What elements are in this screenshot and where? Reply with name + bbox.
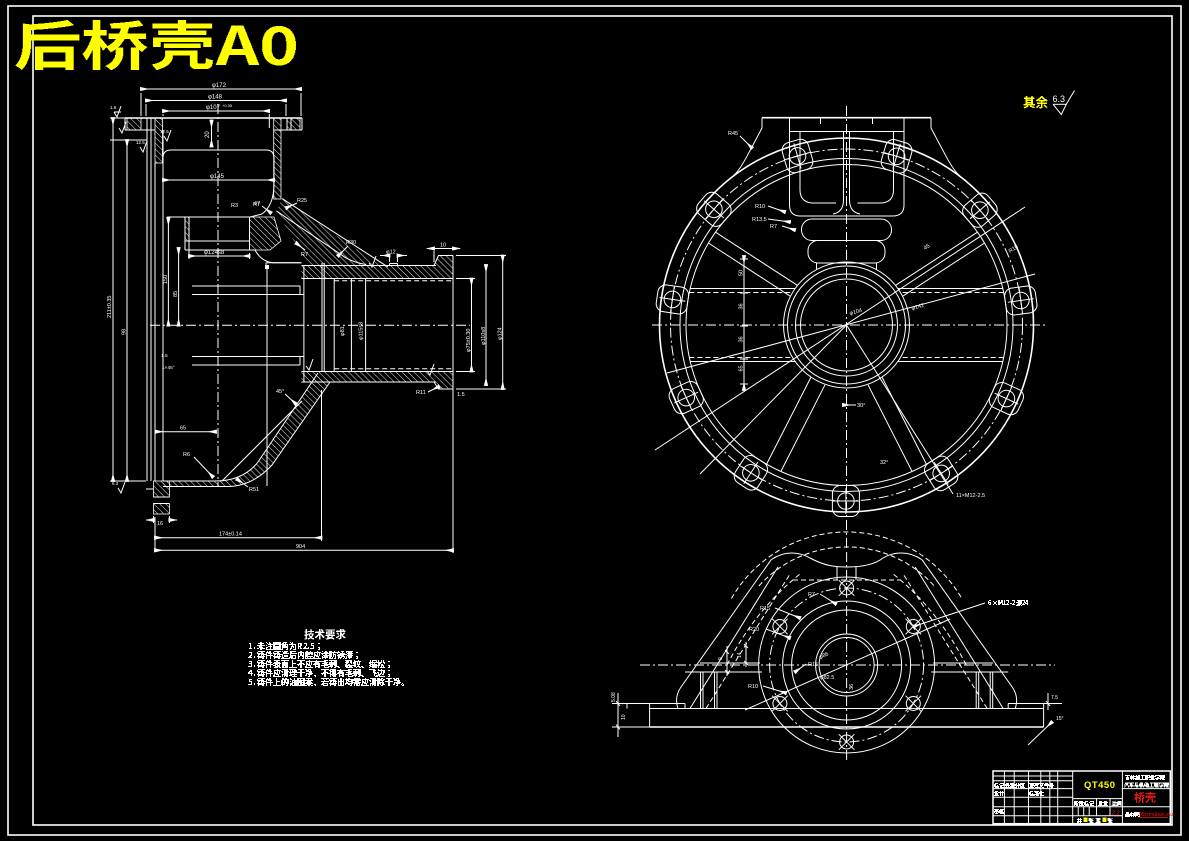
svg-text:36: 36 [849,684,855,690]
svg-text:211±0.35: 211±0.35 [107,296,113,319]
svg-text:16: 16 [157,521,163,527]
svg-text:15°: 15° [1056,716,1064,722]
svg-text:φ148: φ148 [208,95,223,101]
svg-text:98: 98 [122,329,128,335]
svg-text:φ81: φ81 [340,326,346,336]
svg-text:174±0.14: 174±0.14 [219,532,242,538]
svg-text:1.5: 1.5 [161,353,168,359]
svg-text:+0.35: +0.35 [222,103,233,108]
svg-text:7.5: 7.5 [1051,695,1058,701]
svg-text:65: 65 [180,426,186,432]
svg-text:R7: R7 [253,202,260,208]
svg-text:12.5: 12.5 [136,140,145,145]
svg-text:φ124: φ124 [498,327,504,340]
svg-text:R10: R10 [755,204,765,210]
svg-text:6.3: 6.3 [1053,94,1066,104]
svg-text:R10: R10 [748,684,758,690]
svg-text:6.3: 6.3 [112,481,119,486]
svg-text:150: 150 [163,275,169,284]
svg-text:R3: R3 [231,203,238,209]
svg-text:φ124s8: φ124s8 [204,250,225,256]
svg-text:R15: R15 [760,606,770,612]
svg-text:1.5: 1.5 [457,392,465,398]
svg-text:R7: R7 [808,592,815,598]
svg-text:R11: R11 [416,390,426,396]
svg-text:φ115s8: φ115s8 [359,322,365,340]
svg-text:R30: R30 [346,240,356,246]
svg-text:20: 20 [205,131,211,138]
svg-text:904: 904 [296,544,305,550]
svg-text:φ12: φ12 [386,250,396,256]
svg-text:φ107: φ107 [206,105,221,111]
svg-text:1.6: 1.6 [110,105,117,110]
svg-text:85: 85 [173,291,179,297]
svg-text:R15: R15 [808,662,818,668]
svg-text:R7: R7 [301,252,308,258]
svg-text:10: 10 [440,243,446,249]
svg-text:36: 36 [739,303,745,309]
svg-text:φ82.5: φ82.5 [820,675,834,681]
svg-text:R25: R25 [297,198,307,204]
svg-text:R7: R7 [770,224,777,230]
svg-text:50: 50 [739,270,745,276]
svg-text:φ145: φ145 [210,174,225,180]
svg-text:9: 9 [718,657,724,660]
svg-text:QT450: QT450 [1084,780,1115,791]
svg-text:2:2: 2:2 [1112,811,1120,817]
svg-text:R51: R51 [249,487,259,493]
svg-text:R13.5: R13.5 [752,217,767,223]
svg-text:14: 14 [737,652,743,658]
svg-text:32°: 32° [880,460,888,466]
svg-text:R6: R6 [183,452,190,458]
svg-text:65: 65 [739,365,745,371]
svg-text:φ172: φ172 [212,83,227,89]
svg-text:36: 36 [739,336,745,342]
svg-text:R45: R45 [728,131,738,137]
svg-text:30°: 30° [857,403,865,409]
svg-text:5.08: 5.08 [611,692,617,702]
svg-text:R20: R20 [749,627,759,633]
svg-text:1×45°: 1×45° [162,365,175,371]
svg-text:φ110s8: φ110s8 [481,327,487,345]
svg-text:12.5: 12.5 [160,129,169,134]
svg-text:10: 10 [621,714,627,720]
svg-text:45°: 45° [276,389,284,395]
svg-text:11×M12-2.5: 11×M12-2.5 [956,493,985,499]
svg-text:φ75±0.30: φ75±0.30 [466,329,472,352]
